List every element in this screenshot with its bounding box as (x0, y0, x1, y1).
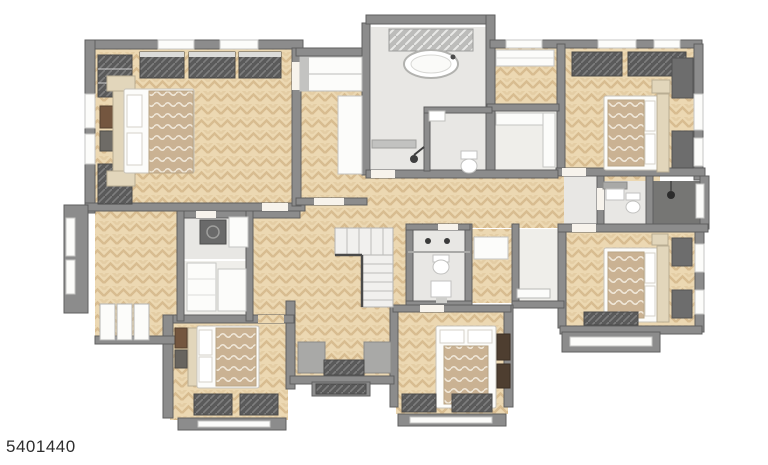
door-bedroom-bl (258, 315, 284, 323)
master-dresser-1-top (140, 52, 184, 57)
floor-plan-svg (0, 0, 768, 465)
door-right-bathroom (597, 188, 604, 210)
den-radiator (324, 360, 364, 375)
bedroom3-headboard (657, 246, 669, 322)
right-bath-toilet-bowl (626, 201, 640, 213)
dressing-counter (338, 96, 362, 174)
wall-right-closet-left (646, 176, 653, 227)
wall-wc-left (406, 224, 413, 307)
master-dresser-3-top (239, 52, 281, 57)
landing-door (517, 289, 550, 298)
washer (200, 220, 226, 244)
bedroom-bl-radiator-2 (240, 394, 278, 415)
bedroom-bc-bay-window (410, 417, 492, 423)
stairs-lower-run (362, 255, 393, 307)
master-wall-art-lower (100, 131, 113, 151)
bedroom3-closet-panel-2 (672, 290, 692, 318)
door-master (262, 203, 288, 211)
door-bedroom3 (572, 224, 596, 232)
bedroom2-pillow-s (645, 134, 655, 164)
window-right-top-3 (654, 40, 680, 48)
window-right-top-1 (506, 40, 542, 48)
window-right-outer-1 (694, 94, 703, 130)
bedroom-bl-headboard (188, 328, 197, 386)
den-bench-2 (364, 342, 391, 373)
bedroom2-pillow-n (645, 101, 655, 131)
floor-plan-image: 5401440 (0, 0, 768, 465)
den-bench-1 (298, 342, 325, 373)
floor-plan-shapes (64, 15, 709, 430)
closet3-shelf-1 (187, 263, 216, 311)
master-pillow-n (127, 95, 142, 127)
door-bathroom (371, 170, 395, 178)
window-master-top-2 (220, 40, 258, 49)
wall-closet-divider (487, 104, 559, 111)
wall-dressing-bath (362, 23, 370, 175)
bedroom-bl-radiator-1 (194, 394, 232, 415)
wc-shower-head-1 (425, 238, 431, 244)
right-bath-toilet-tank (626, 193, 640, 200)
closet3-shelf-2 (218, 269, 246, 311)
wall-bath-top (366, 15, 492, 24)
closet2-cabinet (474, 237, 508, 259)
bedroom-bl-pillow-n (199, 330, 212, 355)
bedroom-bc-pillow-2 (468, 330, 492, 343)
bath-bench (372, 140, 416, 148)
bedroom3-closet-panel-1 (672, 238, 692, 266)
bedroom-bc-radiator-2 (452, 394, 492, 412)
laundry-cabinet (229, 217, 248, 247)
window-master-left-1 (85, 94, 95, 128)
wall-bedroom-bc-top (393, 305, 511, 312)
bedroom3-blanket (608, 252, 644, 318)
door-wc (438, 224, 458, 230)
wall-bath-right (486, 15, 495, 178)
right-bath-counter (603, 182, 627, 189)
bath-skylight (389, 29, 473, 51)
bedroom2-closet-panel-2 (672, 131, 693, 168)
wall-bedroom-bl-left (163, 315, 173, 418)
window-master-top-1 (158, 40, 194, 49)
bedroom-bc-radiator-1 (402, 394, 436, 412)
sitting-window-pane-3 (134, 304, 149, 340)
door-dressing (314, 198, 344, 205)
bedroom2-nightstand (652, 80, 670, 93)
bathtub-faucet (451, 55, 456, 60)
wall-wc-right (465, 224, 472, 307)
bedroom-bc-panel-2 (497, 364, 510, 388)
master-blanket (149, 91, 193, 173)
bedroom3-radiator (584, 312, 638, 325)
bedroom-bl-art-2 (175, 350, 187, 368)
bath-toilet-tank (461, 151, 477, 159)
bedroom3-bay-window (570, 337, 652, 346)
bedroom3-pillow-n (645, 253, 655, 283)
window-sitting-bay-1 (66, 218, 75, 256)
window-right-outer-2 (694, 138, 703, 166)
bedroom-bl-bay-window (198, 421, 270, 427)
bedroom2-headboard (657, 94, 669, 172)
wall-bedroom3-left (558, 232, 566, 328)
pendant-lamp (667, 191, 675, 199)
right-bath-sink (606, 189, 624, 200)
window-bedroom3-2 (695, 290, 704, 314)
shower-head (410, 155, 418, 163)
window-right-top-2 (598, 40, 636, 48)
wc-sink-base (436, 297, 447, 303)
wc-toilet-bowl (433, 260, 449, 274)
bath-sink (429, 111, 445, 121)
bedroom2-clothes-rack-1 (572, 52, 622, 76)
master-wall-art-upper (100, 106, 113, 128)
bedroom3-nightstand (652, 234, 668, 245)
wc-shower-head-2 (444, 238, 450, 244)
bedroom-bl-art-1 (175, 328, 187, 348)
bedroom2-closet-panel-1 (672, 58, 693, 98)
sitting-window-pane-1 (100, 304, 115, 340)
door-bedroom-bc (420, 305, 444, 312)
bedroom-bl-blanket (216, 328, 256, 386)
window-sitting-bay-2 (66, 260, 75, 294)
bedroom3-pillow-s (645, 286, 655, 316)
reference-number: 5401440 (6, 437, 76, 457)
wc-sink (431, 281, 451, 297)
window-master-left-2 (85, 134, 95, 164)
right-hall-floor (564, 176, 600, 224)
den-bay-radiator (316, 384, 366, 394)
master-pillow-s (127, 133, 142, 165)
bedroom2-blanket (608, 100, 644, 166)
wall-landing-bottom (512, 301, 564, 308)
window-bedroom3-1 (695, 244, 704, 272)
wall-dressing-top (296, 48, 369, 56)
bedroom-bc-pillow-1 (440, 330, 464, 343)
bedroom-bc-panel-1 (497, 334, 510, 360)
door-laundry (196, 211, 216, 218)
master-dresser-2-top (189, 52, 235, 57)
dressing-wardrobe-side (300, 57, 309, 91)
bath-toilet-bowl (461, 159, 477, 173)
right-closet-floor (650, 181, 700, 225)
wall-sitting-laundry (177, 211, 184, 321)
stairs-upper-run (335, 228, 393, 255)
closet-lower-desk-v (543, 113, 555, 167)
bathtub-inner (411, 55, 451, 73)
bedroom-bl-pillow-s (199, 357, 212, 382)
master-headboard (113, 91, 125, 171)
sitting-window-pane-2 (117, 304, 132, 340)
door-bedroom2 (562, 168, 586, 176)
window-right-closet (696, 184, 704, 218)
